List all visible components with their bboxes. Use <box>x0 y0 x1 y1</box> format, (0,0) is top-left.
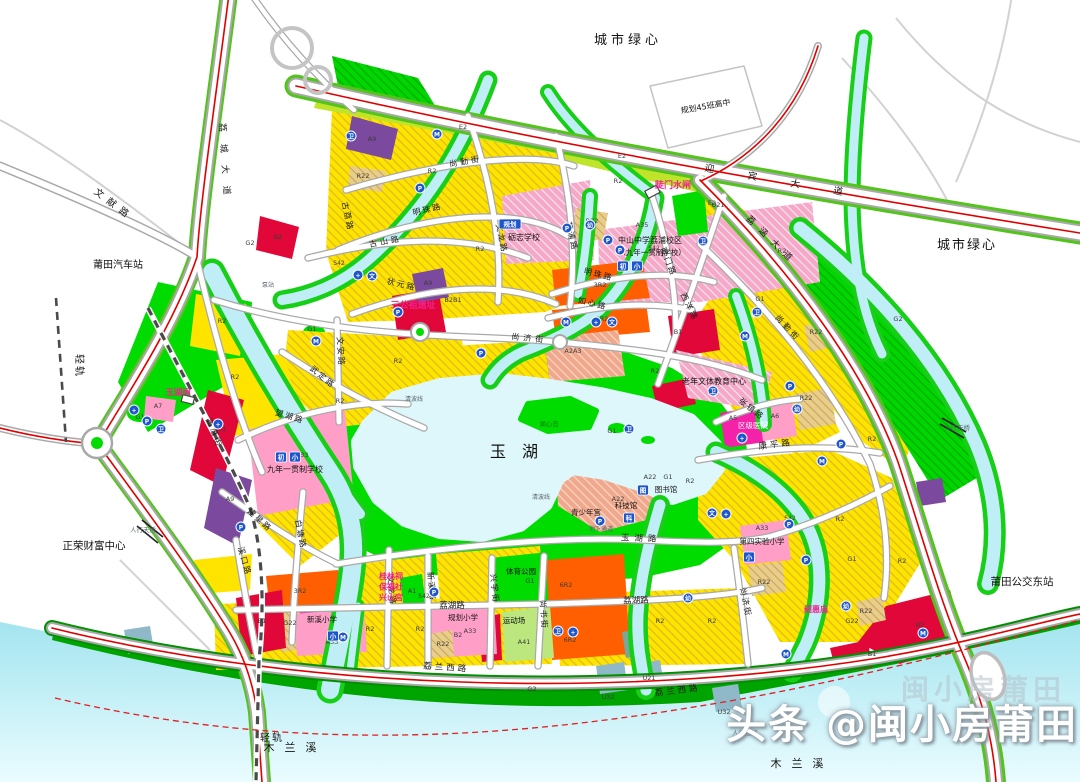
map-label: 清波线 <box>405 395 423 403</box>
map-badge-glyph: 科 <box>626 513 633 522</box>
map-badge-glyph: 小 <box>329 631 337 640</box>
map-label: 轻轨 <box>260 731 284 744</box>
map-label: 青少年宫 <box>571 507 601 517</box>
map-label: B1 <box>868 650 877 658</box>
map-label: 兴山宫 <box>379 592 403 602</box>
map-label: 木兰溪 <box>771 757 834 770</box>
map-label: B2 <box>454 631 463 639</box>
map-label: A5 <box>729 414 738 422</box>
map-label: U21 <box>642 674 655 682</box>
map-label: 荔湖路 <box>439 600 465 611</box>
map-label: R2 <box>218 317 227 325</box>
map-label: G2 <box>893 315 902 323</box>
map-label: E2 <box>618 152 626 160</box>
map-label: 保福社 <box>378 582 403 592</box>
map-label: A9 <box>226 495 235 503</box>
map-badge-glyph: P <box>396 309 401 316</box>
map-badge-glyph: 文 <box>368 272 376 280</box>
map-label: G22 <box>845 617 858 625</box>
map-label: 运动场 <box>503 615 526 625</box>
map-label: A22 <box>644 473 657 481</box>
map-badge-glyph: 图 <box>640 485 647 494</box>
map-label: 第四实验小学 <box>740 536 785 546</box>
map-label: S42 <box>648 245 660 252</box>
map-label: R2 <box>778 247 787 255</box>
map-label: R2 <box>231 373 240 381</box>
map-badge-glyph: 幼 <box>794 405 800 413</box>
map-label: 城市绿心 <box>937 237 997 253</box>
map-label: 规划小学 <box>448 612 478 622</box>
map-badge-glyph: P <box>145 418 150 425</box>
map-label: S42 <box>418 593 430 600</box>
map-badge-glyph: M <box>920 630 926 637</box>
map-label: G1 <box>307 325 316 333</box>
map-label: A7 <box>154 402 163 410</box>
map-label: E2 <box>459 123 467 131</box>
map-label: 荔城大道 <box>216 122 234 207</box>
map-label: 陡门水闸 <box>655 179 691 191</box>
map-badge-glyph: M <box>340 634 346 641</box>
map-badge-glyph: + <box>355 272 360 279</box>
map-badge-glyph: P <box>788 383 793 390</box>
map-label: 图书馆 <box>655 484 678 494</box>
map-label: R22 <box>860 607 873 615</box>
map-badge-glyph: 卫 <box>555 628 561 635</box>
map-label: G2 <box>527 685 536 693</box>
map-badge-glyph: P <box>239 524 244 531</box>
map-badge-glyph: P <box>598 518 603 525</box>
map-badge-glyph: M <box>742 333 748 340</box>
map-label: A6 <box>771 412 780 420</box>
map-label: 体育公园 <box>506 566 536 576</box>
map-label: G1 <box>755 295 764 303</box>
map-label: 桂林祠 <box>378 571 403 581</box>
map-label: 轻轨 <box>73 354 86 378</box>
map-badge-glyph: 初 <box>620 261 627 270</box>
map-label: R2 <box>686 477 695 485</box>
map-label: A22 <box>612 495 625 503</box>
map-label: 玉湖 <box>490 442 554 461</box>
map-badge-glyph: M <box>563 319 569 326</box>
map-label: B1 <box>674 328 683 336</box>
map-badge-glyph: 卫 <box>158 426 164 433</box>
map-label: A9 <box>368 135 377 143</box>
map-label: 人行天桥 <box>944 423 971 432</box>
map-label: 新溪小学 <box>307 614 337 624</box>
map-label: 湖心岛 <box>539 419 559 428</box>
map-badge-glyph: P <box>479 350 484 357</box>
map-label: S42 <box>333 260 345 267</box>
map-label: R22 <box>437 640 450 648</box>
map-badge-glyph: + <box>570 629 575 636</box>
map-badge-glyph: P <box>618 247 623 254</box>
map-badge-glyph: 小 <box>291 452 299 461</box>
map-label: R2 <box>656 617 665 625</box>
map-badge-glyph: M <box>819 458 825 465</box>
map-badge-glyph: 规划 <box>504 219 518 228</box>
map-badge-glyph: 卫 <box>626 426 632 433</box>
map-badge-glyph: 幼 <box>843 602 849 610</box>
map-label: 中山中学荔浦校区 <box>618 235 682 245</box>
map-label: A35 <box>636 221 649 229</box>
map-label: B2 <box>274 233 283 241</box>
map-label: A1 <box>408 587 417 595</box>
map-label: G1 <box>847 555 856 563</box>
map-badge-glyph: P <box>839 441 844 448</box>
map-label: A33 <box>756 524 769 532</box>
map-label: U32 <box>601 693 614 701</box>
map-label: B1 <box>258 617 267 625</box>
map-label: 城市绿心 <box>594 32 662 48</box>
map-badge-glyph: 幼 <box>685 594 691 602</box>
map-label: R2 <box>336 397 345 405</box>
map-badge-glyph: P <box>418 185 423 192</box>
map-label: 3R2 <box>294 587 307 595</box>
map-label: R2 <box>898 557 907 565</box>
map-badge-glyph: P <box>565 225 570 232</box>
map-label: A2A3 <box>564 347 581 355</box>
map-badge-glyph: + <box>593 319 598 326</box>
map-label: 绍惠庙 <box>803 604 828 614</box>
map-badge-glyph: 小 <box>745 552 753 561</box>
map-label: R2 <box>476 245 485 253</box>
map-label: R2 <box>394 357 403 365</box>
map-label: G2 <box>245 239 254 247</box>
map-label: 莆田公交东站 <box>991 575 1054 588</box>
map-label: R22 <box>357 172 370 180</box>
map-label: R2 <box>366 625 375 633</box>
watermark-toutiao: 头条 @闽小房莆田 <box>726 692 1078 750</box>
planning-map-screenshot: 城市绿心城市绿心规划45班高中莆田汽车站正荣财富中心莆田公交东站玉湖木兰溪木兰溪… <box>0 0 1080 782</box>
planning-map: 城市绿心城市绿心规划45班高中莆田汽车站正荣财富中心莆田公交东站玉湖木兰溪木兰溪… <box>0 0 1080 782</box>
map-badge-glyph: M <box>783 651 789 658</box>
map-badge-glyph: 文 <box>608 318 616 326</box>
map-label: R22 <box>758 578 771 586</box>
map-label: 九年一贯制学校 <box>267 464 323 474</box>
map-badge-glyph: 文 <box>708 509 716 517</box>
map-label: R22 <box>800 394 813 402</box>
map-label: 3R2 <box>594 281 607 289</box>
map-label: 文安路 <box>335 336 347 367</box>
map-badge-glyph: M <box>313 338 319 345</box>
map-badge-glyph: + <box>739 435 744 442</box>
map-label: R2 <box>651 367 660 375</box>
map-label: 莆田汽车站 <box>93 258 143 271</box>
map-label: 玉湖闸 <box>165 387 191 398</box>
map-label: 尚书街 <box>538 599 550 630</box>
map-label: R2 <box>428 167 437 175</box>
map-label: 人行天桥 <box>130 525 157 534</box>
map-label: G1 <box>663 473 672 481</box>
map-label: G1 <box>525 577 534 585</box>
map-label: R2 <box>416 625 425 633</box>
map-label: 砺志学校 <box>508 232 540 242</box>
map-label: 玉湖路 <box>621 532 662 544</box>
map-badge-glyph: 小 <box>633 261 641 270</box>
map-label: B2B1 <box>444 296 461 304</box>
map-badge-glyph: + <box>131 407 136 414</box>
map-label: G22 <box>283 619 296 627</box>
map-badge-glyph: 初 <box>278 452 285 461</box>
map-label: 荔湖路 <box>623 595 649 607</box>
map-badge-glyph: 卫 <box>348 133 354 140</box>
map-label: 区级医院 <box>738 420 768 430</box>
map-label: R22 <box>810 328 823 336</box>
map-badge-glyph: 卫 <box>700 238 706 245</box>
map-badge-glyph: P <box>432 589 437 596</box>
map-badge-glyph: 幼 <box>587 221 593 229</box>
map-label: A33 <box>464 627 477 635</box>
map-label: R2 <box>614 177 623 185</box>
map-label: 清波线 <box>532 493 550 501</box>
map-label: R2 <box>868 435 877 443</box>
map-label: 泵站 <box>262 281 274 289</box>
map-label: U21 <box>711 201 724 209</box>
map-badge-glyph: M <box>434 131 440 138</box>
map-badge-glyph: 卫 <box>710 388 716 395</box>
map-label: 6R2 <box>560 581 573 589</box>
map-badge-glyph: + <box>723 511 728 518</box>
map-label: 老年文体教育中心 <box>682 376 746 386</box>
map-label: G1 <box>607 427 616 435</box>
map-badge-glyph: P <box>804 557 809 564</box>
map-label: A41 <box>518 638 531 646</box>
map-label: 正荣财富中心 <box>63 539 126 552</box>
map-label: R2 <box>836 515 845 523</box>
map-badge-glyph: P <box>606 237 611 244</box>
map-badge-glyph: 卫 <box>754 309 760 316</box>
map-badge-glyph: + <box>215 421 220 428</box>
map-badge-glyph: P <box>787 521 792 528</box>
map-label: R2 <box>708 617 717 625</box>
map-label: A9 <box>424 279 433 287</box>
